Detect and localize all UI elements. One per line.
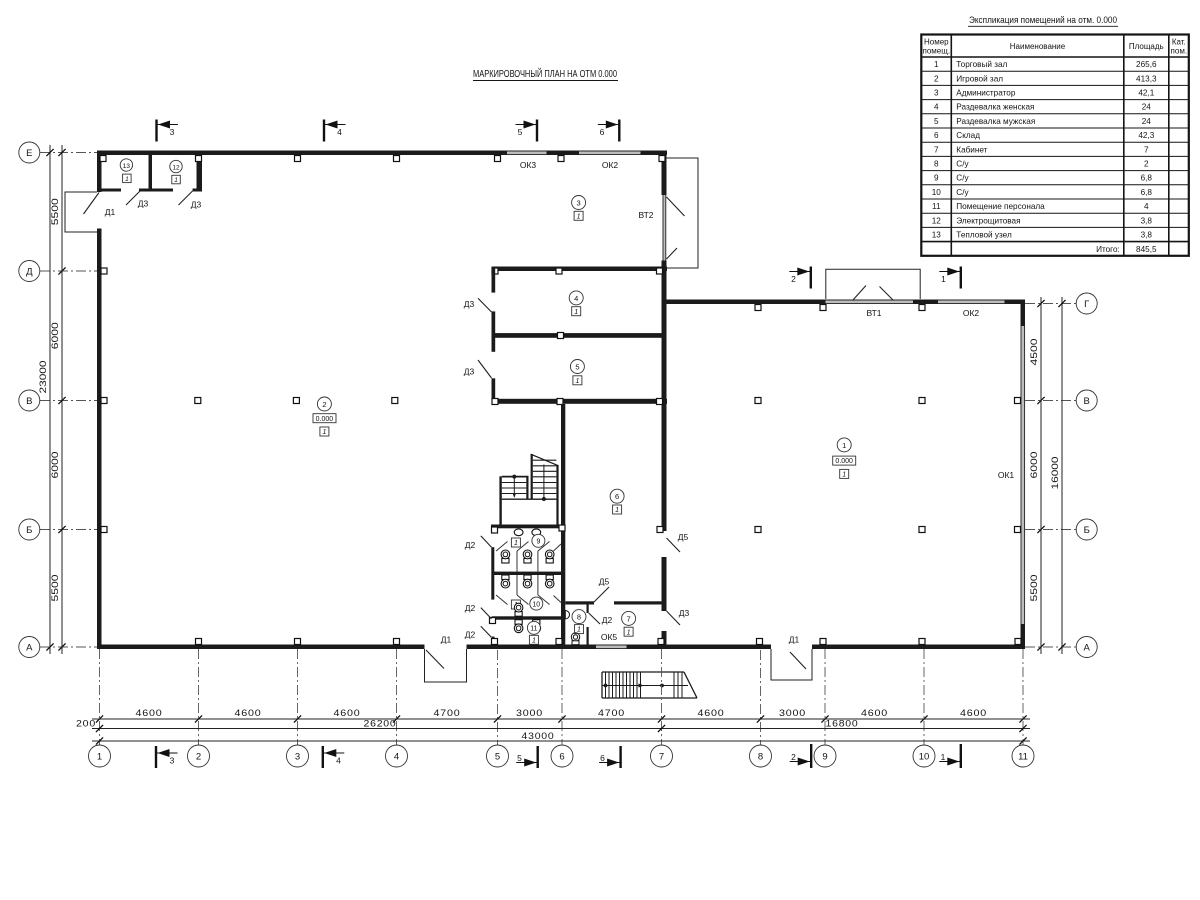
svg-text:6: 6 xyxy=(615,492,619,501)
svg-text:9: 9 xyxy=(934,174,939,183)
svg-text:2: 2 xyxy=(322,400,326,409)
svg-text:6: 6 xyxy=(934,131,939,140)
svg-text:12: 12 xyxy=(172,164,180,171)
svg-text:Д2: Д2 xyxy=(465,603,476,613)
svg-text:ОК2: ОК2 xyxy=(963,308,980,318)
svg-text:4600: 4600 xyxy=(334,708,361,719)
svg-text:Тепловой узел: Тепловой узел xyxy=(956,231,1012,240)
svg-text:2: 2 xyxy=(791,752,796,762)
svg-text:Д2: Д2 xyxy=(465,629,476,639)
svg-text:4600: 4600 xyxy=(960,708,987,719)
svg-text:Д1: Д1 xyxy=(441,635,452,645)
svg-text:4700: 4700 xyxy=(434,708,461,719)
svg-text:4600: 4600 xyxy=(861,708,888,719)
svg-text:6: 6 xyxy=(600,753,605,763)
svg-text:ОК1: ОК1 xyxy=(998,470,1015,480)
svg-text:43000: 43000 xyxy=(522,731,555,742)
svg-text:Д3: Д3 xyxy=(679,608,690,618)
svg-text:Д3: Д3 xyxy=(464,367,475,377)
svg-text:6: 6 xyxy=(559,752,564,763)
svg-text:Г: Г xyxy=(1084,299,1089,310)
svg-text:4: 4 xyxy=(1144,202,1149,211)
svg-text:4: 4 xyxy=(337,127,342,137)
svg-text:9: 9 xyxy=(536,539,540,546)
svg-text:13: 13 xyxy=(123,163,131,170)
svg-text:Д3: Д3 xyxy=(464,299,475,309)
svg-text:8: 8 xyxy=(934,160,939,169)
svg-text:С/у: С/у xyxy=(956,174,969,183)
svg-text:Торговый зал: Торговый зал xyxy=(956,60,1007,69)
svg-text:Д: Д xyxy=(26,267,33,278)
svg-text:4600: 4600 xyxy=(136,708,163,719)
svg-text:12: 12 xyxy=(932,216,942,225)
svg-text:3,8: 3,8 xyxy=(1141,216,1153,225)
svg-text:3: 3 xyxy=(295,752,300,763)
svg-text:6000: 6000 xyxy=(50,322,61,349)
svg-text:Кат.: Кат. xyxy=(1172,38,1186,47)
svg-text:Е: Е xyxy=(26,148,32,159)
svg-text:ВТ2: ВТ2 xyxy=(638,210,653,220)
svg-text:3,8: 3,8 xyxy=(1141,231,1153,240)
svg-text:6000: 6000 xyxy=(50,452,61,479)
svg-text:1: 1 xyxy=(514,540,518,547)
svg-text:3: 3 xyxy=(934,89,939,98)
svg-text:ОК5: ОК5 xyxy=(601,632,618,642)
svg-text:4600: 4600 xyxy=(235,708,262,719)
svg-text:Электрощитовая: Электрощитовая xyxy=(956,216,1020,225)
svg-text:Д3: Д3 xyxy=(191,200,202,210)
svg-text:5: 5 xyxy=(517,753,522,763)
svg-text:1: 1 xyxy=(574,309,578,316)
svg-text:6: 6 xyxy=(600,127,605,137)
svg-text:Номер: Номер xyxy=(924,38,949,47)
svg-text:845,5: 845,5 xyxy=(1136,245,1157,254)
svg-text:2: 2 xyxy=(934,74,939,83)
svg-text:10: 10 xyxy=(532,601,540,608)
svg-text:2: 2 xyxy=(1144,160,1149,169)
svg-text:ОК3: ОК3 xyxy=(520,160,537,170)
svg-text:1: 1 xyxy=(615,507,619,514)
svg-text:5500: 5500 xyxy=(50,575,61,602)
svg-text:4: 4 xyxy=(394,752,399,763)
svg-text:1: 1 xyxy=(941,274,946,284)
svg-text:3000: 3000 xyxy=(516,708,543,719)
svg-text:5: 5 xyxy=(518,127,523,137)
svg-text:11: 11 xyxy=(530,626,537,633)
svg-text:8: 8 xyxy=(577,613,581,622)
svg-text:413,3: 413,3 xyxy=(1136,74,1157,83)
svg-text:МАРКИРОВОЧНЫЙ ПЛАН НА ОТМ 0.00: МАРКИРОВОЧНЫЙ ПЛАН НА ОТМ 0.000 xyxy=(473,67,617,80)
svg-text:А: А xyxy=(1084,643,1091,654)
svg-text:7: 7 xyxy=(934,145,939,154)
svg-text:4500: 4500 xyxy=(1029,339,1040,366)
svg-text:1: 1 xyxy=(842,441,846,450)
svg-text:1: 1 xyxy=(532,637,536,644)
svg-text:Д1: Д1 xyxy=(105,207,116,217)
svg-text:42,1: 42,1 xyxy=(1138,89,1154,98)
svg-text:Помещение персонала: Помещение персонала xyxy=(956,202,1045,211)
svg-text:Д5: Д5 xyxy=(599,577,610,587)
svg-text:Итого:: Итого: xyxy=(1096,245,1120,254)
svg-text:23000: 23000 xyxy=(38,361,49,394)
svg-text:24: 24 xyxy=(1142,117,1152,126)
svg-text:13: 13 xyxy=(932,231,942,240)
svg-text:С/у: С/у xyxy=(956,188,969,197)
svg-text:Д2: Д2 xyxy=(465,540,476,550)
svg-text:1: 1 xyxy=(842,472,846,479)
svg-text:В: В xyxy=(26,396,32,407)
svg-text:Раздевалка мужская: Раздевалка мужская xyxy=(956,117,1035,126)
svg-text:1: 1 xyxy=(125,176,129,183)
svg-text:7: 7 xyxy=(659,752,664,763)
svg-text:9: 9 xyxy=(822,752,827,763)
svg-text:помещ.: помещ. xyxy=(923,47,951,56)
svg-text:5: 5 xyxy=(575,363,579,372)
svg-text:Администратор: Администратор xyxy=(956,89,1016,98)
svg-text:265,6: 265,6 xyxy=(1136,60,1157,69)
svg-text:3: 3 xyxy=(577,199,581,208)
svg-text:Б: Б xyxy=(1084,525,1090,536)
svg-text:2: 2 xyxy=(791,274,796,284)
svg-text:5500: 5500 xyxy=(1029,575,1040,602)
svg-text:Кабинет: Кабинет xyxy=(956,145,987,154)
svg-text:1: 1 xyxy=(577,213,581,220)
svg-text:16800: 16800 xyxy=(826,719,859,730)
svg-text:ОК2: ОК2 xyxy=(602,160,619,170)
svg-text:1: 1 xyxy=(627,629,631,636)
svg-text:Д2: Д2 xyxy=(602,615,613,625)
svg-text:Б: Б xyxy=(26,525,32,536)
svg-text:11: 11 xyxy=(932,202,941,211)
svg-text:В: В xyxy=(1084,396,1090,407)
svg-text:5: 5 xyxy=(934,117,939,126)
svg-text:1: 1 xyxy=(575,378,579,385)
svg-text:4600: 4600 xyxy=(698,708,725,719)
svg-text:24: 24 xyxy=(1142,103,1152,112)
svg-text:4: 4 xyxy=(574,294,578,303)
svg-text:Экспликация помещений на отм.: Экспликация помещений на отм. 0.000 xyxy=(969,15,1117,25)
svg-text:1: 1 xyxy=(322,429,326,436)
svg-text:8: 8 xyxy=(758,752,763,763)
svg-text:Д1: Д1 xyxy=(789,635,800,645)
svg-text:4: 4 xyxy=(934,103,939,112)
svg-text:2: 2 xyxy=(196,752,201,763)
svg-text:Склад: Склад xyxy=(956,131,980,140)
svg-text:пом.: пом. xyxy=(1171,47,1188,56)
svg-text:4: 4 xyxy=(336,756,341,766)
svg-text:1: 1 xyxy=(97,752,102,763)
svg-text:16000: 16000 xyxy=(1050,457,1061,490)
svg-text:200: 200 xyxy=(76,719,96,730)
svg-text:10: 10 xyxy=(932,188,942,197)
svg-text:1: 1 xyxy=(934,60,939,69)
svg-text:Игровой зал: Игровой зал xyxy=(956,74,1003,83)
svg-text:ВТ1: ВТ1 xyxy=(866,308,881,318)
svg-text:5: 5 xyxy=(495,752,500,763)
svg-text:А: А xyxy=(26,643,33,654)
svg-text:3: 3 xyxy=(170,756,175,766)
svg-text:Площадь: Площадь xyxy=(1129,42,1164,51)
svg-text:Д5: Д5 xyxy=(678,532,689,542)
svg-text:Наименование: Наименование xyxy=(1010,42,1066,51)
svg-text:0.000: 0.000 xyxy=(316,416,334,423)
svg-text:Д3: Д3 xyxy=(138,199,149,209)
svg-text:С/у: С/у xyxy=(956,160,969,169)
svg-text:Раздевалка женская: Раздевалка женская xyxy=(956,103,1034,112)
svg-text:1: 1 xyxy=(941,752,946,762)
svg-text:7: 7 xyxy=(1144,145,1149,154)
svg-text:10: 10 xyxy=(919,752,930,763)
svg-text:3000: 3000 xyxy=(779,708,806,719)
svg-text:4700: 4700 xyxy=(598,708,625,719)
svg-text:1: 1 xyxy=(174,177,178,184)
svg-text:1: 1 xyxy=(577,627,581,634)
svg-text:3: 3 xyxy=(170,127,175,137)
svg-text:6000: 6000 xyxy=(1029,452,1040,479)
svg-text:6,8: 6,8 xyxy=(1141,174,1153,183)
svg-text:26200: 26200 xyxy=(364,719,397,730)
svg-text:11: 11 xyxy=(1018,752,1028,763)
svg-text:0.000: 0.000 xyxy=(835,458,853,465)
svg-text:7: 7 xyxy=(627,614,631,623)
svg-text:6,8: 6,8 xyxy=(1141,188,1153,197)
svg-text:5500: 5500 xyxy=(50,198,61,225)
svg-text:42,3: 42,3 xyxy=(1138,131,1154,140)
